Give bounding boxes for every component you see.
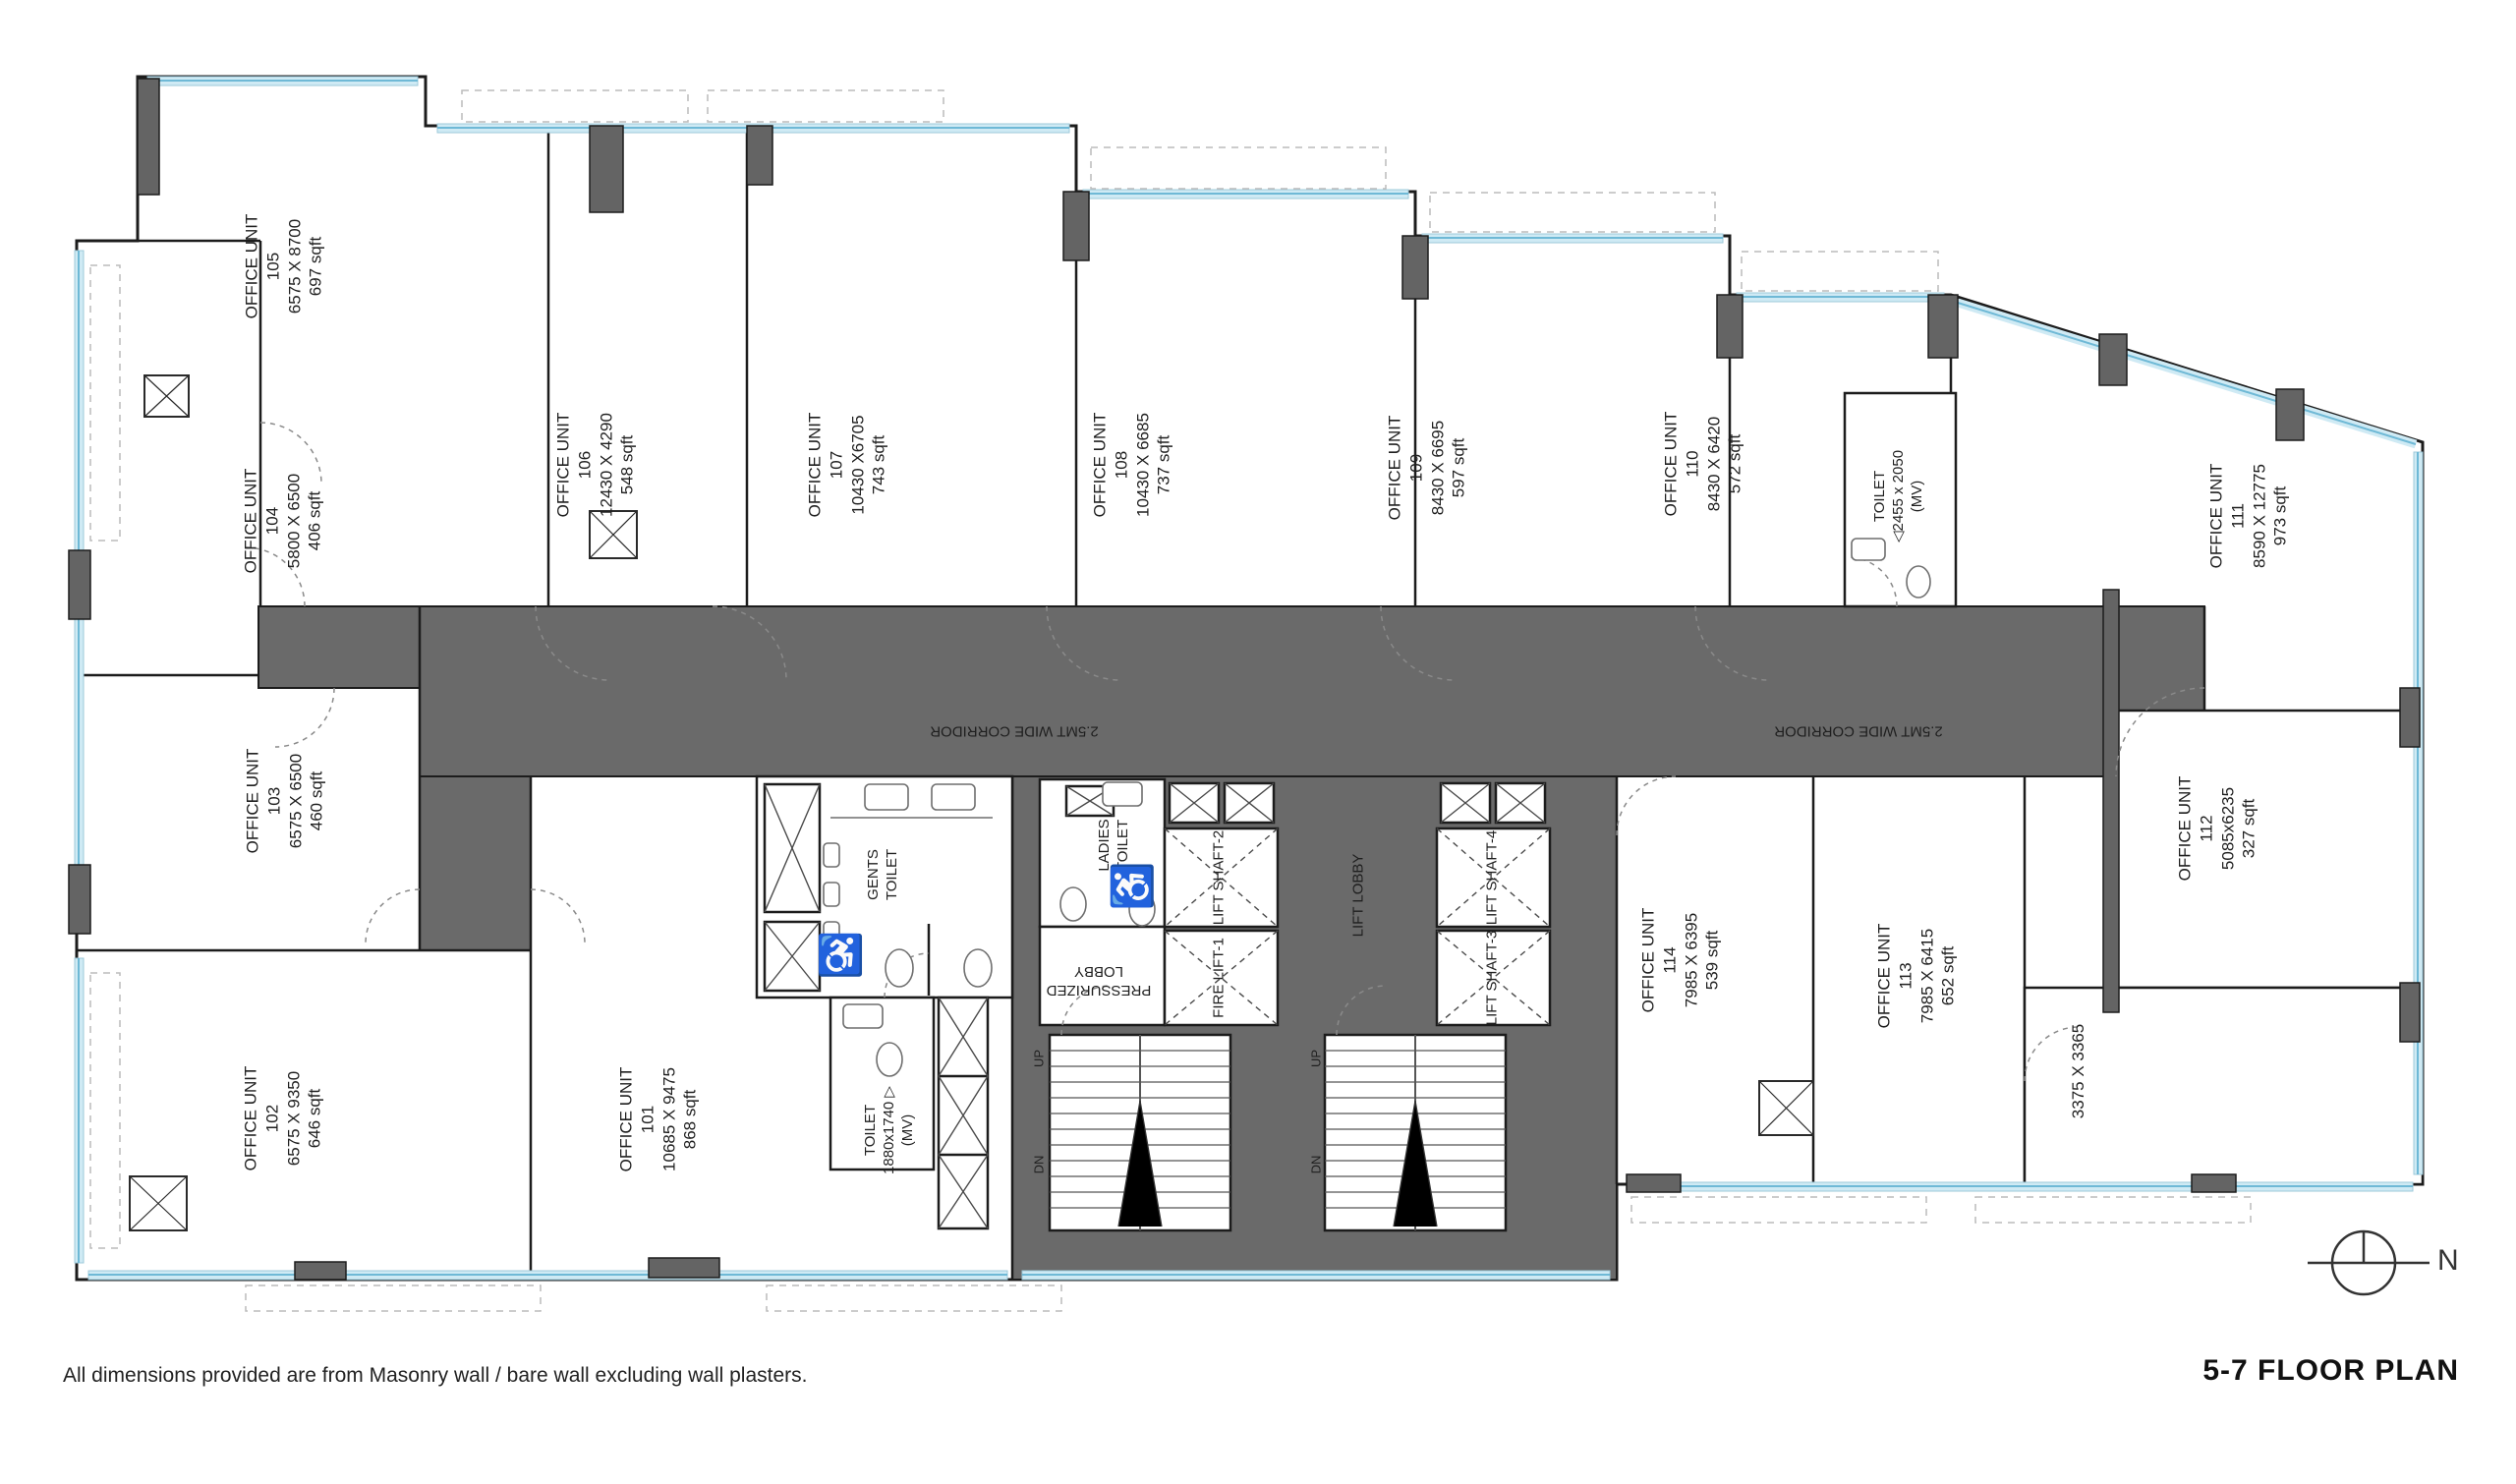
- wheelchair-icon: ♿: [816, 933, 865, 979]
- stair1-dn-label: DN: [1032, 1156, 1049, 1174]
- corridor-label-east: 2.5MT WIDE CORRIDOR: [1774, 721, 1942, 740]
- wheelchair-icon: ♿: [1110, 862, 1156, 911]
- unit-114-label: OFFICE UNIT 114 7985 X 6395 539 sqft: [1638, 908, 1724, 1013]
- lift-shaft-2-label: LIFT SHAFT-2: [1209, 830, 1228, 925]
- unit-112-label: OFFICE UNIT 112 5085x6235 327 sqft: [2175, 776, 2260, 882]
- pressurized-lobby-label: PRESSURIZED LOBBY: [1047, 962, 1152, 999]
- stair2-dn-label: DN: [1309, 1156, 1326, 1174]
- unit-108-label: OFFICE UNIT 108 10430 X 6685 737 sqft: [1090, 413, 1175, 518]
- floor-plan-canvas: OFFICE UNIT 105 6575 X 8700 697 sqft OFF…: [0, 0, 2516, 1484]
- unit-110-label: OFFICE UNIT 110 8430 X 6420 572 sqft: [1661, 412, 1746, 517]
- gents-toilet-label: GENTS TOILET: [864, 849, 901, 900]
- unit-101-label: OFFICE UNIT 101 10685 X 9475 868 sqft: [616, 1067, 702, 1172]
- unit-103-label: OFFICE UNIT 103 6575 X 6500 460 sqft: [243, 749, 328, 854]
- fire-lift-1-label: FIRE LIFT-1: [1209, 938, 1228, 1018]
- toilet-right-label: TOILET ◁2455 x 2050 (MV): [1870, 450, 1927, 542]
- dimensions-note: All dimensions provided are from Masonry…: [63, 1364, 808, 1388]
- lift-shaft-3-label: LIFT SHAFT-3: [1482, 931, 1501, 1025]
- unit-105-label: OFFICE UNIT 105 6575 X 8700 697 sqft: [242, 214, 327, 319]
- north-label: N: [2437, 1244, 2459, 1278]
- stair2-up-label: UP: [1309, 1050, 1326, 1067]
- stair1-up-label: UP: [1032, 1050, 1049, 1067]
- lift-lobby-label: LIFT LOBBY: [1348, 854, 1367, 938]
- unit-102-label: OFFICE UNIT 102 6575 X 9350 646 sqft: [241, 1066, 326, 1171]
- toilet-small-label: TOILET 1880x1740 ▷ (MV): [861, 1086, 918, 1174]
- unit-104-label: OFFICE UNIT 104 5800 X 6500 406 sqft: [241, 469, 326, 574]
- unit-107-label: OFFICE UNIT 107 10430 X6705 743 sqft: [805, 413, 890, 518]
- unit-109-label: OFFICE UNIT 109 8430 X 6695 597 sqft: [1385, 416, 1470, 521]
- floor-plan-drawing: [0, 0, 2516, 1484]
- page-title: 5-7 FLOOR PLAN: [2202, 1354, 2459, 1388]
- unit-111-label: OFFICE UNIT 111 8590 X 12775 973 sqft: [2206, 464, 2292, 569]
- lift-shaft-4-label: LIFT SHAFT-4: [1482, 830, 1501, 925]
- unit-113-label: OFFICE UNIT 113 7985 X 6415 652 sqft: [1874, 924, 1960, 1029]
- corridor-label-west: 2.5MT WIDE CORRIDOR: [930, 721, 1098, 740]
- unit-106-label: OFFICE UNIT 106 12430 X 4290 548 sqft: [553, 413, 639, 518]
- corner-room-dims-label: 3375 X 3365: [2068, 1024, 2089, 1118]
- north-arrow-icon: [2308, 1231, 2430, 1294]
